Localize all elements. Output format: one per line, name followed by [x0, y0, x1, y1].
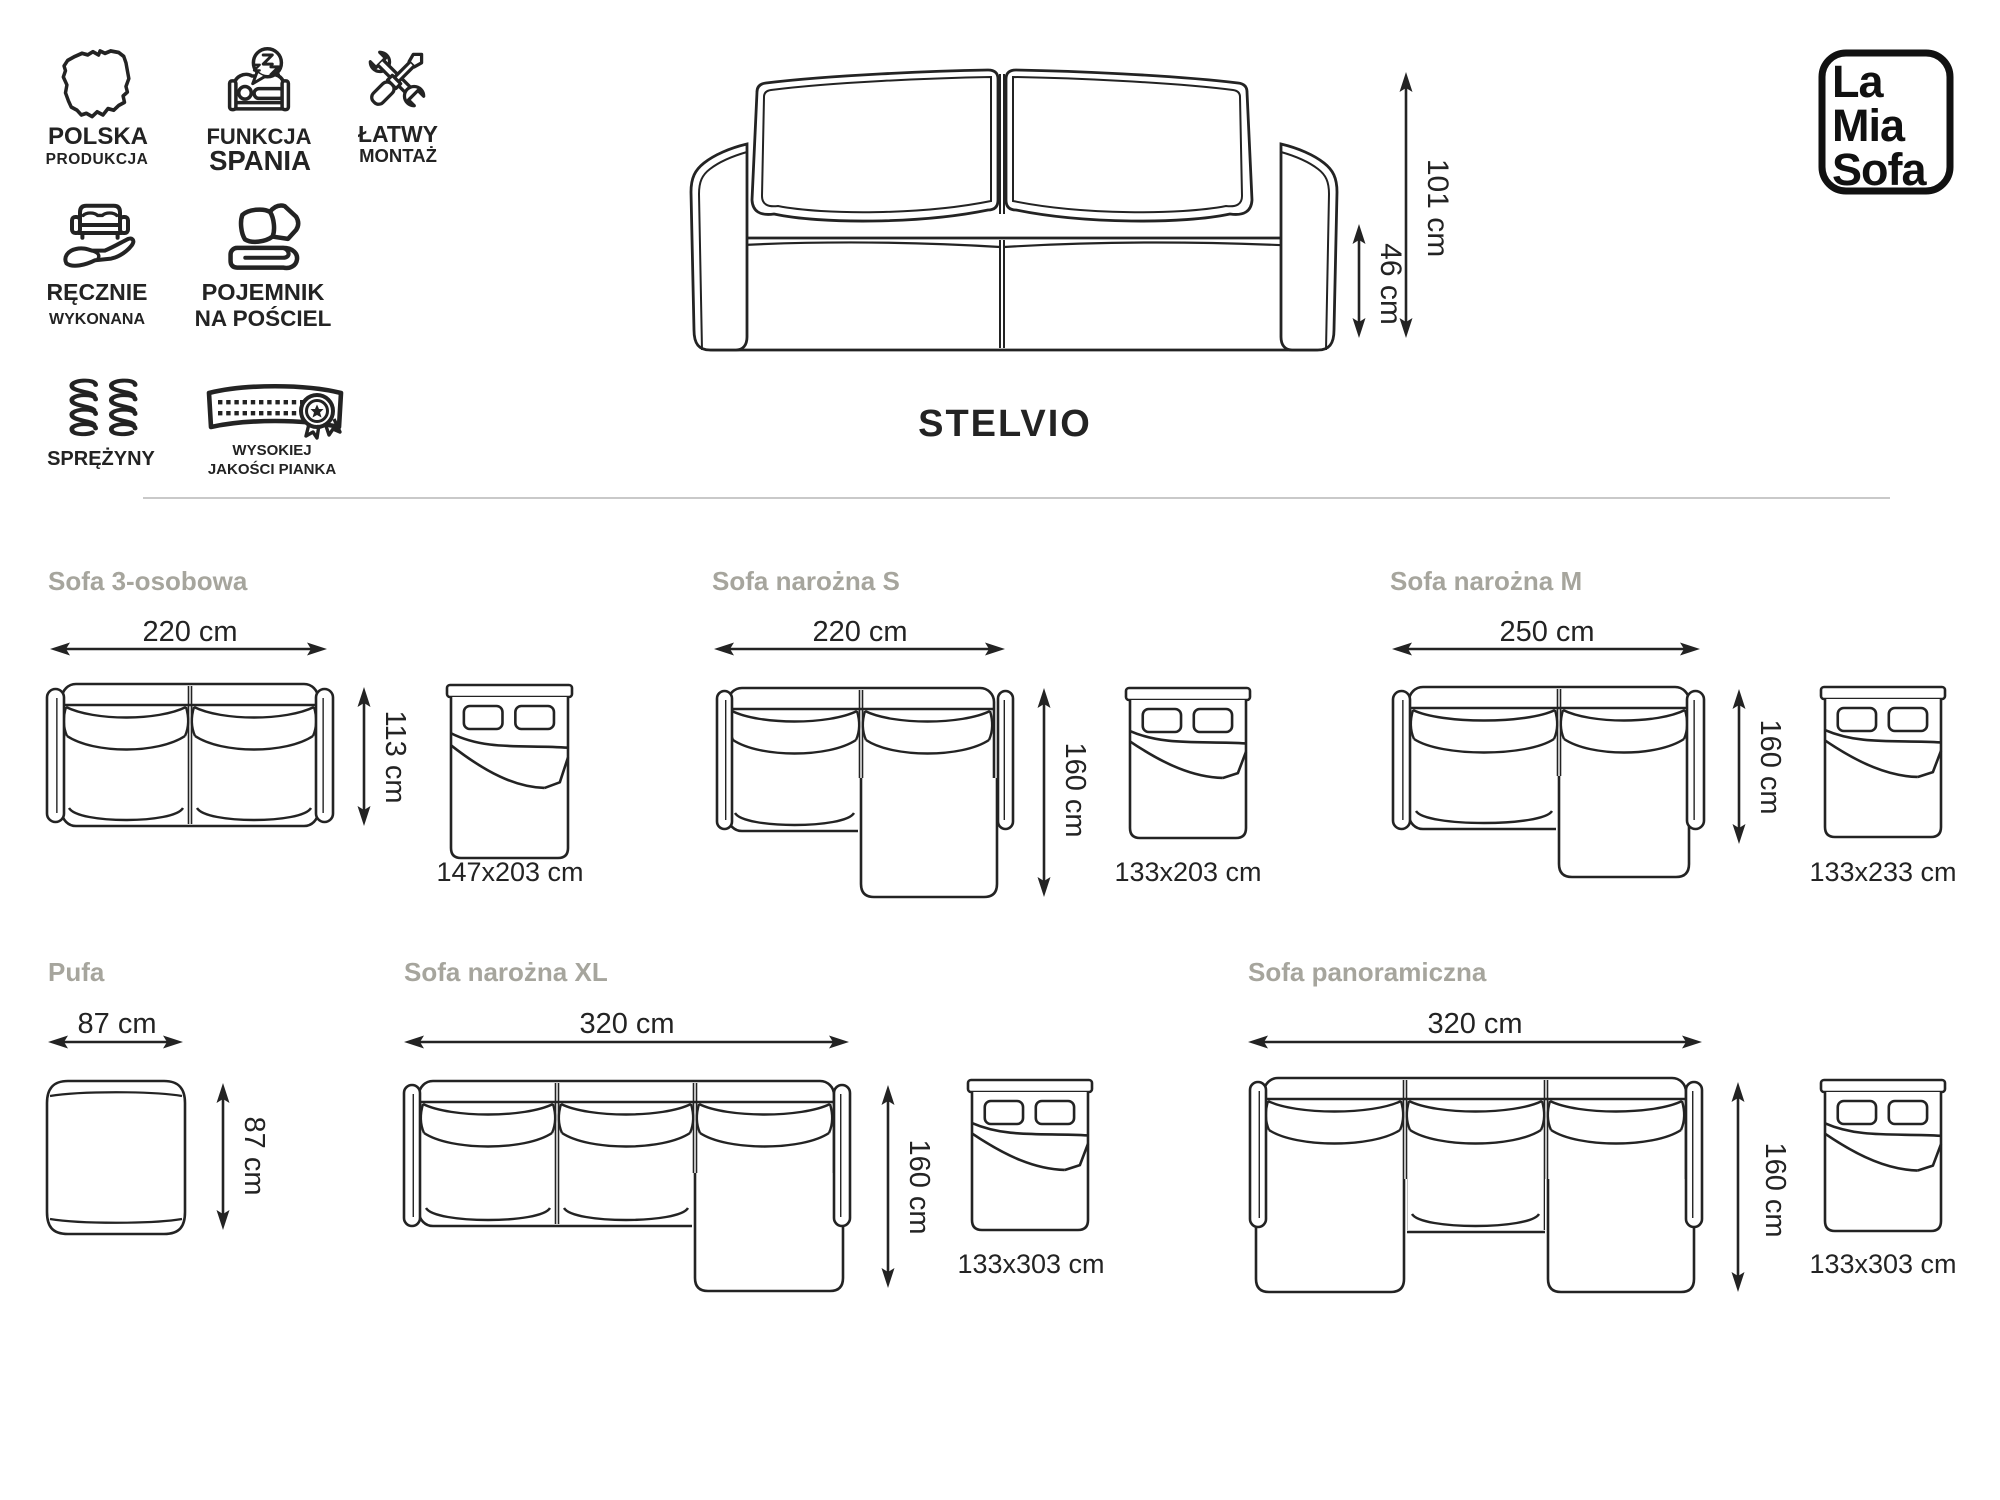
svg-text:Sofa: Sofa [1832, 144, 1927, 195]
svg-text:320 cm: 320 cm [1427, 1008, 1522, 1040]
svg-text:113 cm: 113 cm [379, 711, 411, 804]
svg-text:87 cm: 87 cm [78, 1008, 157, 1040]
svg-text:RĘCZNIE: RĘCZNIE [47, 279, 148, 305]
svg-text:101 cm: 101 cm [1421, 159, 1454, 257]
svg-text:MONTAŻ: MONTAŻ [359, 145, 437, 166]
svg-text:Sofa panoramiczna: Sofa panoramiczna [1248, 957, 1487, 987]
svg-text:220 cm: 220 cm [812, 616, 907, 648]
svg-text:Sofa narożna M: Sofa narożna M [1390, 566, 1582, 596]
svg-text:Pufa: Pufa [48, 957, 105, 987]
svg-text:160 cm: 160 cm [1754, 719, 1786, 814]
svg-text:ŁATWY: ŁATWY [358, 121, 438, 147]
svg-text:Sofa narożna S: Sofa narożna S [712, 566, 900, 596]
svg-text:160 cm: 160 cm [903, 1139, 935, 1234]
svg-text:STELVIO: STELVIO [918, 403, 1092, 445]
svg-text:220 cm: 220 cm [142, 616, 237, 648]
svg-text:WYKONANA: WYKONANA [49, 311, 145, 328]
svg-text:Sofa narożna XL: Sofa narożna XL [404, 957, 608, 987]
svg-text:POLSKA: POLSKA [48, 123, 148, 150]
svg-text:SPANIA: SPANIA [209, 145, 311, 176]
svg-text:JAKOŚCI PIANKA: JAKOŚCI PIANKA [208, 460, 337, 478]
svg-text:160 cm: 160 cm [1759, 1142, 1791, 1237]
svg-text:133x203 cm: 133x203 cm [1114, 857, 1261, 887]
svg-text:133x303 cm: 133x303 cm [957, 1249, 1104, 1279]
svg-text:POJEMNIK: POJEMNIK [202, 279, 325, 305]
svg-text:320 cm: 320 cm [579, 1008, 674, 1040]
svg-text:147x203 cm: 147x203 cm [436, 857, 583, 887]
svg-text:133x233 cm: 133x233 cm [1809, 857, 1956, 887]
svg-text:WYSOKIEJ: WYSOKIEJ [232, 442, 311, 459]
svg-text:250 cm: 250 cm [1499, 616, 1594, 648]
svg-text:133x303 cm: 133x303 cm [1809, 1249, 1956, 1279]
svg-text:SPRĘŻYNY: SPRĘŻYNY [47, 447, 155, 470]
svg-text:87 cm: 87 cm [238, 1117, 270, 1196]
svg-text:46 cm: 46 cm [1374, 243, 1407, 325]
svg-text:NA POŚCIEL: NA POŚCIEL [195, 306, 332, 331]
svg-text:160 cm: 160 cm [1059, 742, 1091, 837]
svg-text:Sofa 3-osobowa: Sofa 3-osobowa [48, 566, 248, 596]
svg-text:PRODUKCJA: PRODUKCJA [46, 151, 149, 168]
